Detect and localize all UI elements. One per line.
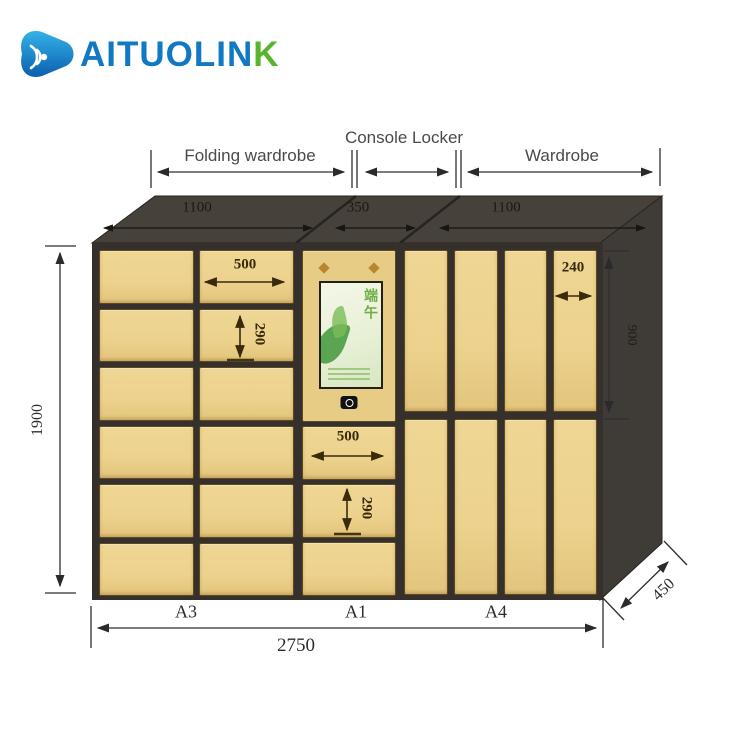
cabinet-top-face [92,196,662,243]
wardrobe-door [454,250,498,412]
wardrobe-door [504,419,548,595]
diamond-ornament-icon [318,262,329,273]
section-a4-wardrobe [404,250,597,595]
locker-door [199,484,294,538]
console-panel: 端午 [302,250,396,422]
dim-top-width-middle: 350 [347,200,370,217]
label-wardrobe: Wardrobe [525,146,599,166]
locker-door-290 [302,484,396,538]
wardrobe-door [404,250,448,412]
dim-top-width-left: 1100 [182,200,211,217]
locker-door [99,309,194,363]
wardrobe-door [404,419,448,595]
section-a3-folding-wardrobe [99,250,294,596]
dim-a3-door-height: 290 [251,323,268,346]
console-screen: 端午 [319,281,383,389]
wardrobe-door [454,419,498,595]
locker-dimension-diagram: AITUOLINK 端午 [0,0,750,750]
locker-door [199,543,294,597]
locker-door [99,543,194,597]
wardrobe-door [553,419,597,595]
label-console-locker: Console Locker [345,128,463,148]
locker-door [99,367,194,421]
dim-a1-door-width: 500 [337,429,360,446]
diamond-ornament-icon [368,262,379,273]
poster-text: 端午 [359,288,379,322]
cabinet-side-face [600,196,662,600]
dim-overall-height: 1900 [29,404,47,436]
scanner-icon [341,396,358,409]
locker-door [199,367,294,421]
label-section-a1: A1 [345,602,367,623]
locker-door [99,426,194,480]
dim-a4-door-width: 240 [562,260,585,277]
dim-top-width-right: 1100 [491,200,520,217]
label-folding-wardrobe: Folding wardrobe [184,146,315,166]
wardrobe-door [504,250,548,412]
dim-a1-door-height: 290 [358,497,375,520]
locker-door [99,250,194,304]
locker-door [99,484,194,538]
locker-door-290 [199,309,294,363]
dim-right-column-height: 900 [623,325,639,346]
label-section-a4: A4 [485,602,507,623]
dim-a3-door-width: 500 [234,257,257,274]
locker-door [199,426,294,480]
dim-overall-width: 2750 [277,635,315,657]
section-a1-console-locker: 端午 [302,250,396,596]
poster-caption-lines [328,368,370,380]
label-section-a3: A3 [175,602,197,623]
locker-door [302,542,396,596]
